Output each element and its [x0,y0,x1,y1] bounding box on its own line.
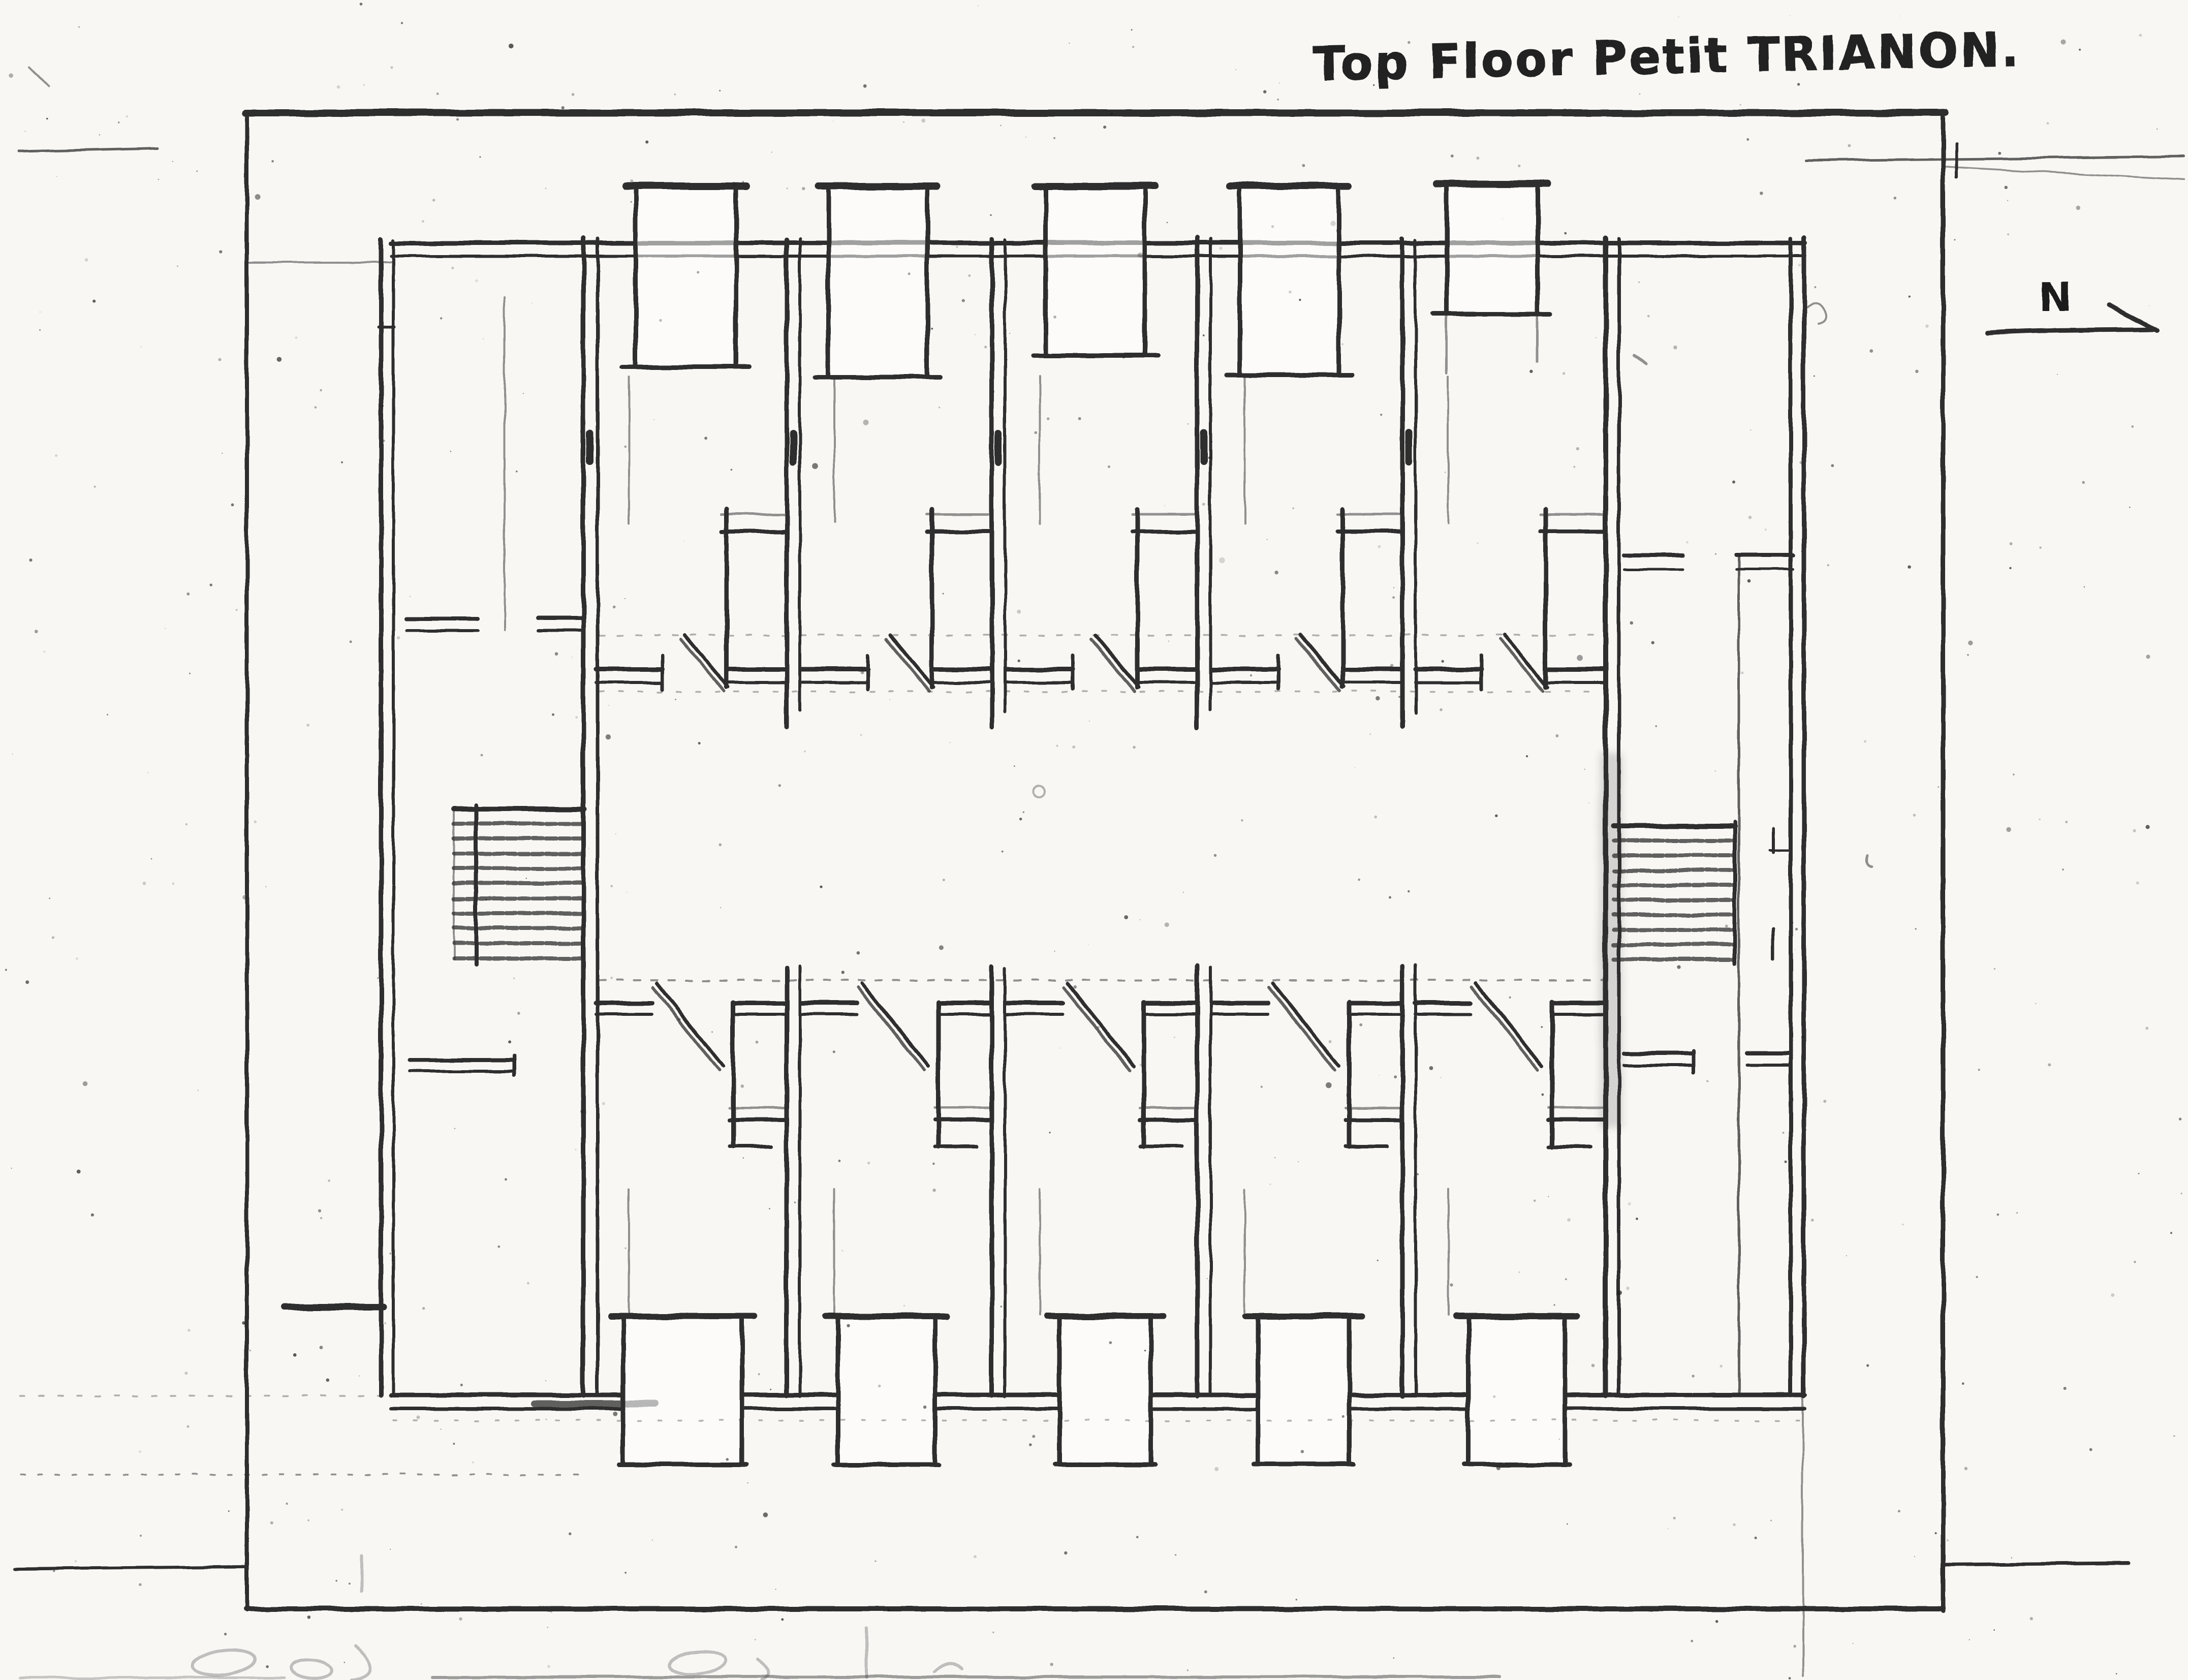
right-end-room [1600,238,1804,1396]
bottom-chamber-interiors [596,983,1606,1315]
scanned-floor-plan-sheet: Top Floor Petit TRIANON. N [0,0,2188,1680]
left-staircase [454,805,584,965]
left-end-room [285,238,598,1395]
building-outer-walls [391,243,1805,1409]
north-arrow-icon: N [1988,275,2158,333]
top-chimney-boxes [622,184,1551,377]
ghost-marks [20,303,1872,1680]
room-divider-walls [590,238,1416,1396]
annotations: Top Floor Petit TRIANON. N [1312,22,2158,333]
north-label: N [2039,275,2072,321]
top-chamber-interiors [596,377,1606,691]
page-title: Top Floor Petit TRIANON. [1312,22,2021,91]
right-staircase [1614,822,1788,963]
floor-plan-svg: Top Floor Petit TRIANON. N [0,0,2188,1680]
bottom-chimney-boxes [610,1316,1578,1465]
